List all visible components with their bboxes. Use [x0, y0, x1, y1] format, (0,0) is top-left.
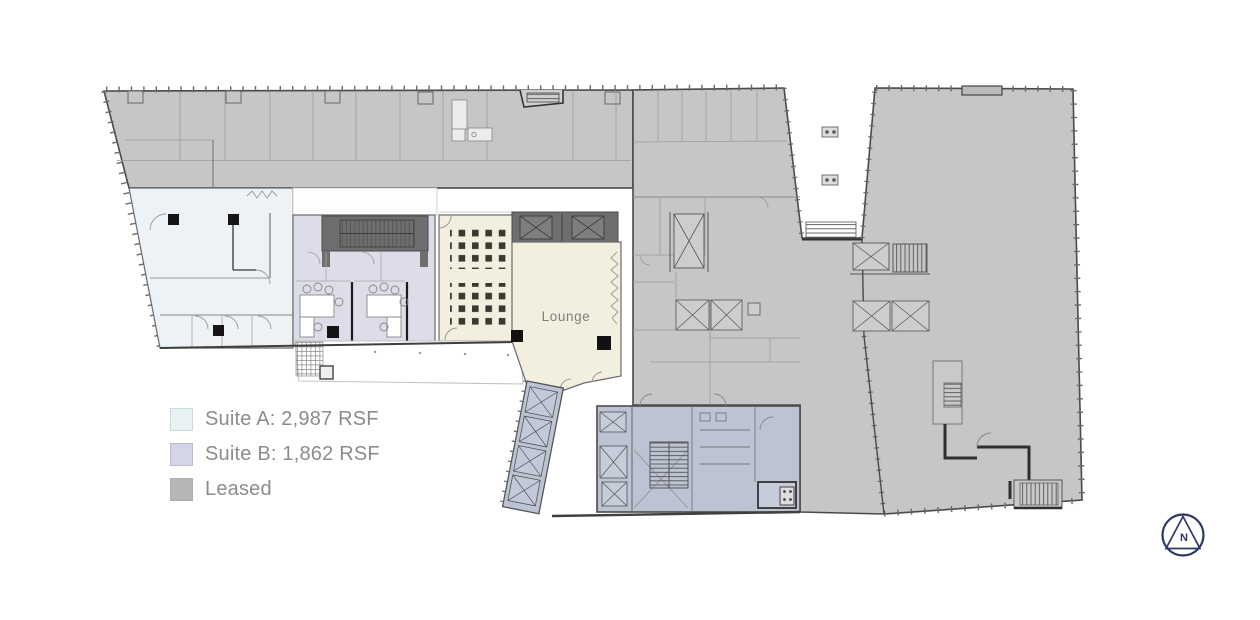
training-room-region [439, 212, 516, 341]
floor-plan: Lounge [0, 0, 1260, 620]
legend-item-leased: Leased [170, 477, 380, 502]
floor-plan-page: Lounge [0, 0, 1260, 620]
lounge-region: Lounge [511, 242, 621, 393]
legend-item-suite-b: Suite B: 1,862 RSF [170, 442, 380, 467]
suite-b-swatch [170, 443, 193, 466]
leased-swatch [170, 478, 193, 501]
legend: Suite A: 2,987 RSF Suite B: 1,862 RSF Le… [170, 407, 380, 512]
lounge-label: Lounge [542, 309, 591, 324]
legend-item-suite-a: Suite A: 2,987 RSF [170, 407, 380, 432]
terrace-region [160, 341, 523, 384]
north-icon: N [1163, 515, 1204, 556]
suite-a-region [129, 188, 293, 348]
legend-label: Suite B: 1,862 RSF [205, 443, 380, 466]
legend-label: Leased [205, 478, 272, 501]
notch-details [802, 127, 862, 240]
suite-b-region [293, 215, 435, 346]
suite-a-swatch [170, 408, 193, 431]
elevator-strip [501, 381, 563, 514]
core-region [552, 394, 800, 516]
legend-label: Suite A: 2,987 RSF [205, 408, 379, 431]
corridor [293, 188, 437, 215]
north-label: N [1180, 532, 1188, 544]
